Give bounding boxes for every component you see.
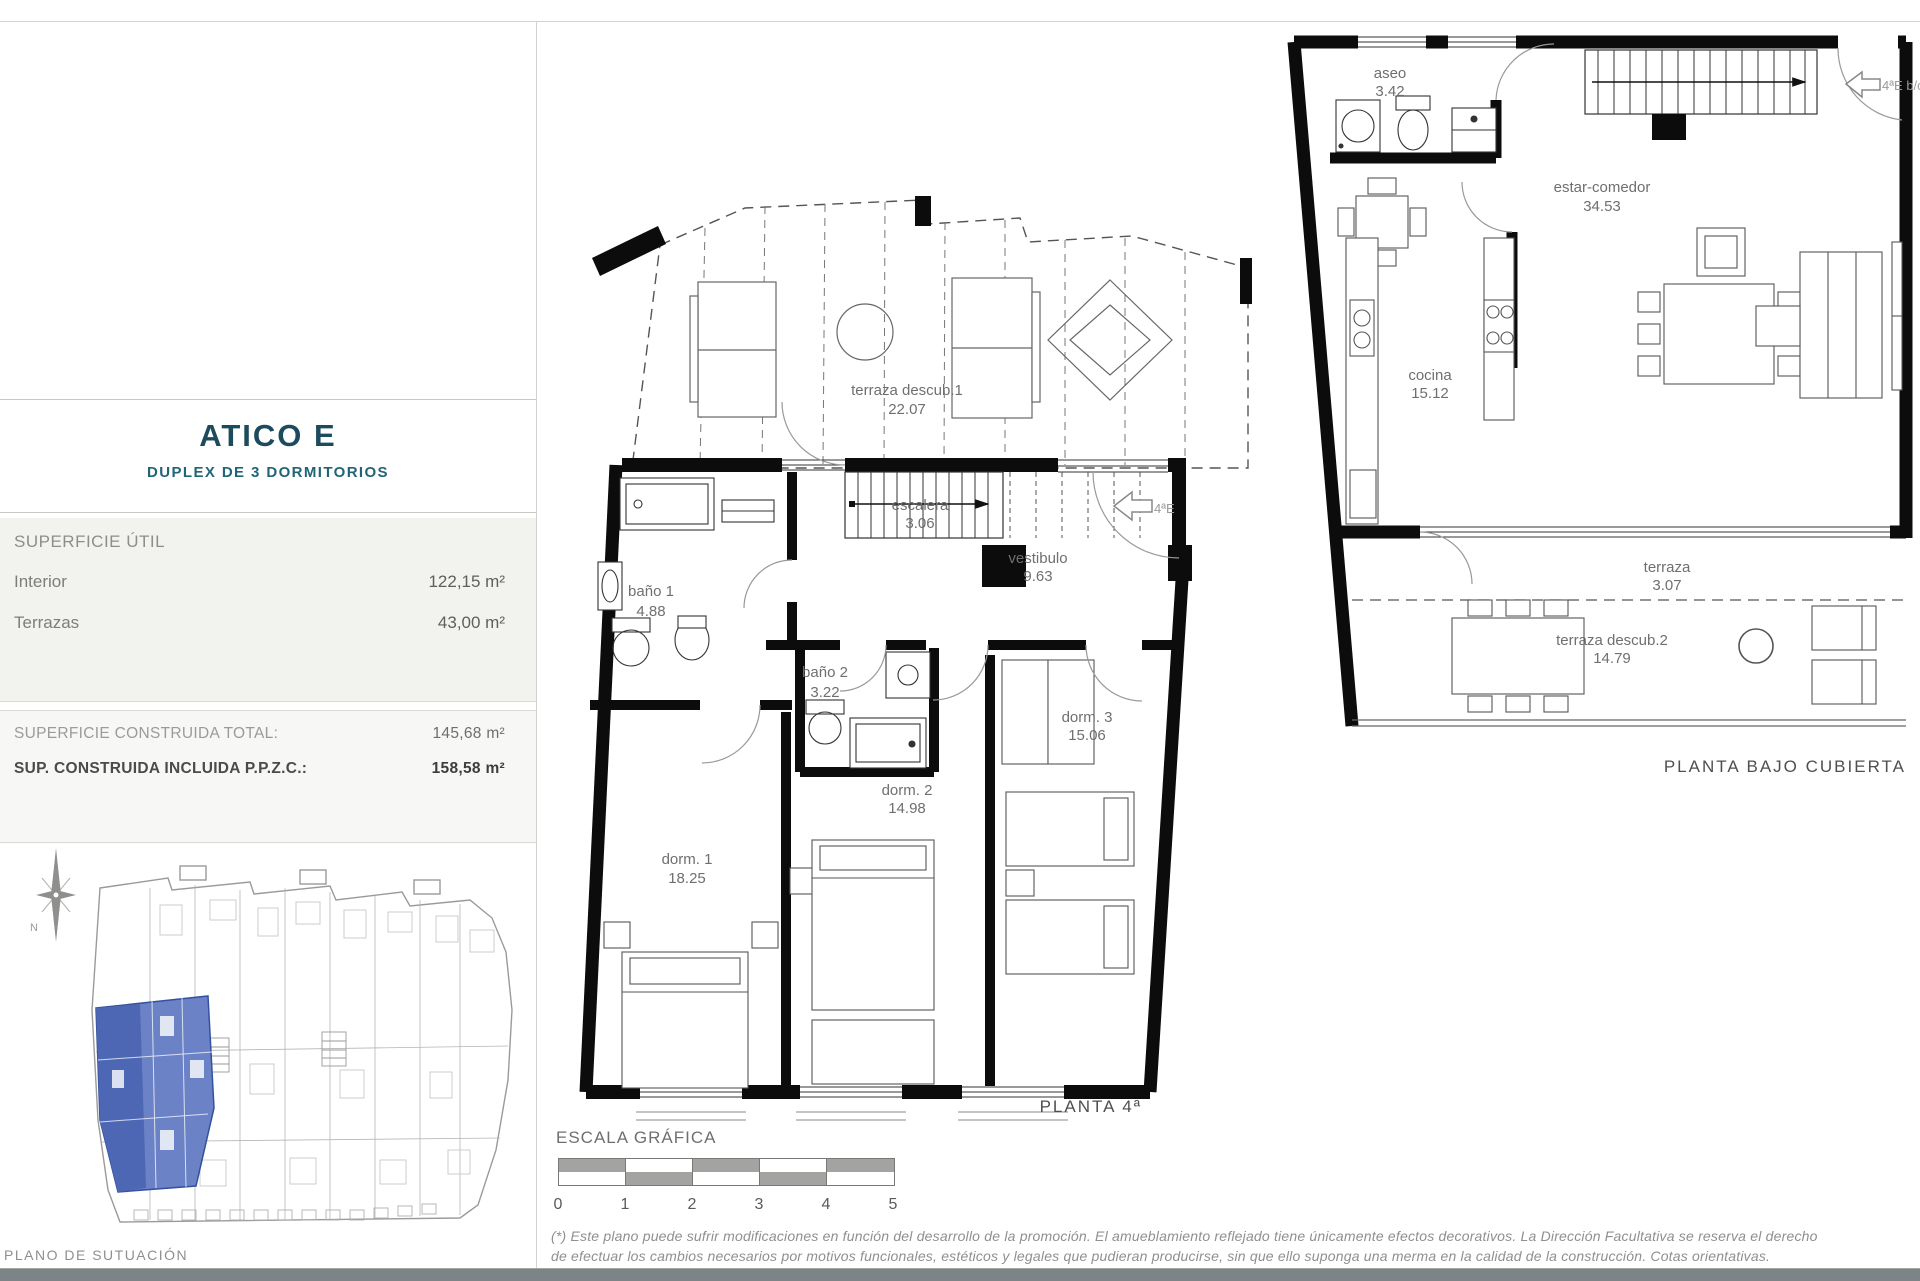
entry-arrow-icon (1846, 72, 1880, 97)
room-area: 4.88 (636, 603, 665, 620)
room-label: terraza descub.1 (851, 382, 963, 399)
superficie-util-header: SUPERFICIE ÚTIL (14, 532, 505, 552)
scale-cell (693, 1172, 760, 1185)
site-plan: N (20, 840, 535, 1240)
room-area: 14.98 (888, 800, 926, 817)
total-row-ppzc: SUP. CONSTRUIDA INCLUIDA P.P.Z.C.: 158,5… (14, 760, 505, 778)
planta-bajo-cubierta-plan: 4ªE b/c aseo 3.42 estar-comedor 34.53 co… (1280, 20, 1920, 790)
scale-tick: 5 (889, 1196, 898, 1214)
scale-tick: 3 (755, 1196, 764, 1214)
total-row-label: SUPERFICIE CONSTRUIDA TOTAL: (14, 725, 278, 743)
footer-bar (0, 1268, 1920, 1281)
floorplan-sheet: { "colors": { "accent": "#1d4b5e", "teal… (0, 0, 1920, 1280)
area-row-label: Terrazas (14, 613, 79, 633)
scale-tick: 0 (554, 1196, 563, 1214)
area-row-value: 122,15 m² (428, 572, 505, 592)
scale-cell (693, 1159, 760, 1172)
window-sills (636, 1112, 1068, 1120)
stair (1585, 50, 1817, 140)
page-subtitle: DUPLEX DE 3 DORMITORIOS (0, 464, 536, 481)
site-plan-caption: PLANO DE SUTUACIÓN (4, 1247, 188, 1263)
scale-cell (760, 1159, 827, 1172)
superficie-util-panel: SUPERFICIE ÚTIL Interior 122,15 m² Terra… (0, 518, 536, 702)
unit-title-block: ATICO E DUPLEX DE 3 DORMITORIOS (0, 399, 536, 513)
room-label: dorm. 2 (882, 782, 933, 799)
room-area: 15.12 (1411, 385, 1449, 402)
plan-title-bajo-cubierta: PLANTA BAJO CUBIERTA (1664, 757, 1906, 776)
area-row-terrazas: Terrazas 43,00 m² (14, 613, 505, 633)
terrace2-furniture (1452, 600, 1876, 712)
total-row-label: SUP. CONSTRUIDA INCLUIDA P.P.Z.C.: (14, 760, 307, 778)
room-label: baño 2 (802, 664, 848, 681)
room-label: aseo (1374, 65, 1407, 82)
scale-cell (626, 1172, 693, 1185)
room-area: 9.63 (1023, 568, 1052, 585)
room-label: baño 1 (628, 583, 674, 600)
plan-title-planta4: PLANTA 4ª (1040, 1097, 1142, 1116)
room-area: 18.25 (668, 870, 706, 887)
aseo-fixtures (1336, 96, 1496, 152)
scale-cell (559, 1159, 626, 1172)
scale-tick: 1 (621, 1196, 630, 1214)
disclaimer-line-2: de efectuar los cambios necesarios por m… (551, 1248, 1770, 1264)
scale-bar (558, 1158, 895, 1186)
room-area: 14.79 (1593, 650, 1631, 667)
room-area: 3.22 (810, 684, 839, 701)
room-area: 15.06 (1068, 727, 1106, 744)
planta-4-plan: 4ªE terraza descub.1 22.07 escalera 3.06… (540, 150, 1260, 1170)
scale-tick: 2 (688, 1196, 697, 1214)
area-row-value: 43,00 m² (438, 613, 505, 633)
room-label: terraza descub.2 (1556, 632, 1668, 649)
terrace-pergola (592, 196, 1252, 468)
scale-ticks: 0 1 2 3 4 5 (558, 1196, 893, 1216)
area-row-interior: Interior 122,15 m² (14, 572, 505, 592)
dorm1-furniture (604, 922, 778, 1088)
room-label: estar-comedor (1554, 179, 1651, 196)
door-marker-label: 4ªE b/c (1882, 78, 1920, 93)
scale-cell (760, 1172, 827, 1185)
room-label: vestibulo (1008, 550, 1067, 567)
room-label: dorm. 3 (1062, 709, 1113, 726)
scale-cell (827, 1159, 894, 1172)
room-label: escalera (892, 497, 949, 514)
room-area: 3.06 (905, 515, 934, 532)
stair (845, 472, 1140, 587)
superficie-construida-panel: SUPERFICIE CONSTRUIDA TOTAL: 145,68 m² S… (0, 710, 536, 843)
door-marker-label: 4ªE (1154, 501, 1175, 516)
dorm3-furniture (1002, 660, 1134, 974)
room-label: cocina (1408, 367, 1452, 384)
scale-title: ESCALA GRÁFICA (556, 1128, 716, 1148)
room-area: 34.53 (1583, 198, 1621, 215)
estar-furniture (1638, 228, 1902, 398)
scale-tick: 4 (822, 1196, 831, 1214)
scale-cell (827, 1172, 894, 1185)
room-area: 22.07 (888, 401, 926, 418)
total-row-value: 145,68 m² (433, 725, 506, 743)
disclaimer-line-1: (*) Este plano puede sufrir modificacion… (551, 1228, 1818, 1244)
scale-cell (626, 1159, 693, 1172)
sidebar-divider (536, 21, 537, 1268)
dorm2-furniture (790, 840, 934, 1084)
total-row: SUPERFICIE CONSTRUIDA TOTAL: 145,68 m² (14, 725, 505, 743)
terrace-edge (1352, 720, 1906, 726)
room-area: 3.07 (1652, 577, 1681, 594)
room-area: 3.42 (1375, 83, 1404, 100)
scale-cell (559, 1172, 626, 1185)
room-label: terraza (1644, 559, 1691, 576)
compass-north-label: N (30, 922, 38, 934)
highlighted-unit (96, 996, 214, 1192)
room-label: dorm. 1 (662, 851, 713, 868)
entry-arrow-icon (1114, 492, 1152, 520)
north-compass-icon: N (30, 848, 76, 942)
page-title: ATICO E (0, 418, 536, 454)
area-row-label: Interior (14, 572, 67, 592)
total-row-value: 158,58 m² (432, 760, 505, 778)
banyo1-fixtures (598, 478, 774, 666)
